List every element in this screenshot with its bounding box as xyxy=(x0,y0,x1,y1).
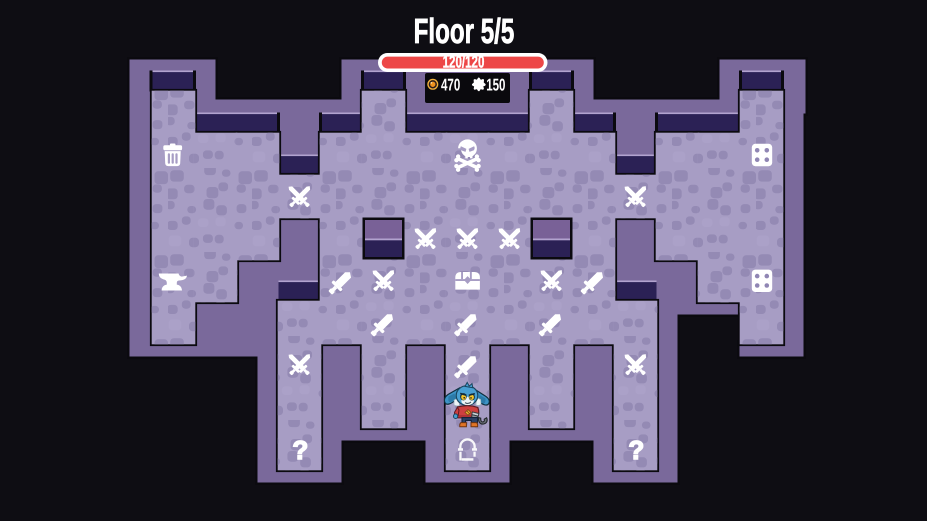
svg-text:150: 150 xyxy=(486,75,505,94)
svg-text:120/120: 120/120 xyxy=(443,52,485,71)
svg-text:Floor 5/5: Floor 5/5 xyxy=(414,12,515,51)
svg-text:470: 470 xyxy=(441,75,460,94)
